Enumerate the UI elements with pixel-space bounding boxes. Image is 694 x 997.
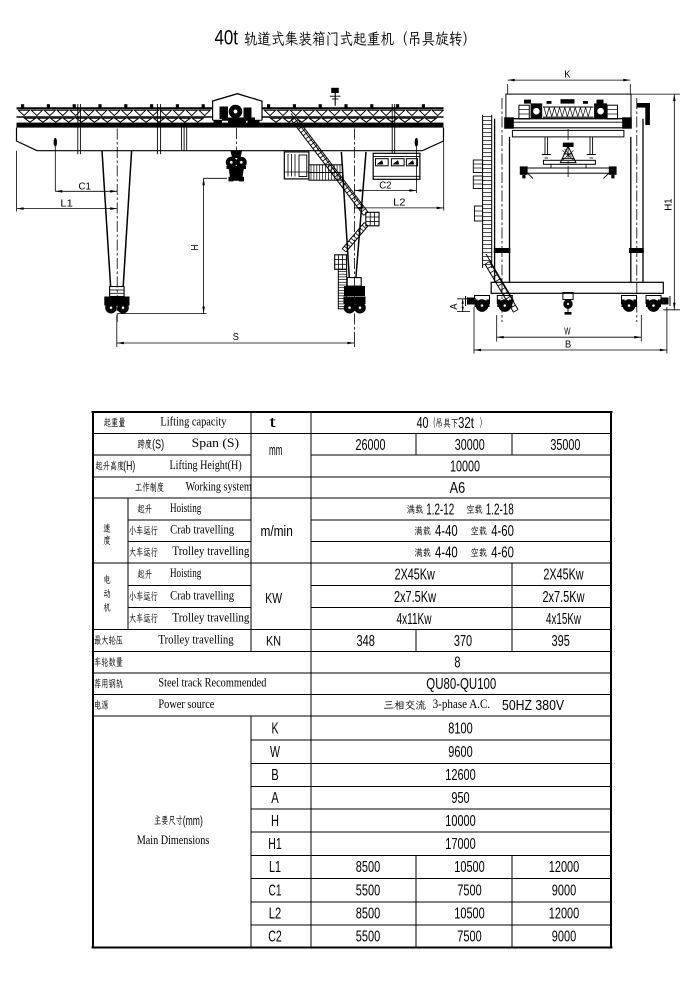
svg-text:8500: 8500 [356, 906, 381, 923]
svg-text:Lifting Height(H): Lifting Height(H) [170, 457, 242, 472]
svg-text:395: 395 [552, 633, 570, 650]
svg-text:9000: 9000 [552, 882, 576, 899]
svg-text:W: W [270, 744, 281, 761]
svg-text:4-60: 4-60 [491, 523, 514, 540]
svg-text:QU80-QU100: QU80-QU100 [426, 676, 496, 693]
svg-text:KN: KN [266, 632, 281, 648]
svg-text:W: W [564, 326, 570, 338]
svg-text:L2: L2 [269, 906, 282, 923]
svg-text:12600: 12600 [445, 767, 476, 784]
svg-text:8: 8 [454, 655, 460, 672]
svg-text:Hoisting: Hoisting [170, 500, 202, 515]
svg-text:Trolley travelling: Trolley travelling [172, 609, 249, 624]
svg-text:B: B [565, 339, 571, 351]
svg-text:Steel track Recommended: Steel track Recommended [158, 675, 266, 690]
svg-text:17000: 17000 [445, 836, 476, 853]
svg-text:H1: H1 [662, 198, 674, 211]
svg-text:50HZ 380V: 50HZ 380V [502, 698, 564, 714]
svg-text:40t: 40t [215, 26, 239, 49]
svg-text:A6: A6 [450, 480, 466, 497]
svg-text:30000: 30000 [455, 437, 485, 454]
svg-text:2X45Kw: 2X45Kw [543, 567, 584, 584]
svg-text:4x11Kw: 4x11Kw [397, 611, 432, 628]
svg-text:4-60: 4-60 [491, 545, 514, 562]
svg-text:370: 370 [454, 633, 472, 650]
svg-text:Crab travelling: Crab travelling [170, 522, 234, 537]
svg-text:12000: 12000 [549, 859, 580, 876]
svg-text:950: 950 [451, 790, 469, 807]
svg-text:26000: 26000 [356, 437, 386, 454]
svg-text:(H): (H) [123, 459, 135, 473]
svg-text:(S): (S) [152, 438, 164, 452]
svg-text:Power source: Power source [158, 696, 214, 711]
svg-text:C1: C1 [79, 180, 92, 192]
svg-text:4-40: 4-40 [435, 545, 458, 562]
svg-text:1.2-18: 1.2-18 [486, 501, 514, 518]
svg-text:Working system: Working system [186, 478, 252, 493]
svg-text:Hoisting: Hoisting [170, 565, 202, 580]
svg-text:Lifting capacity: Lifting capacity [160, 414, 226, 429]
svg-text:10000: 10000 [450, 459, 480, 476]
svg-text:H1: H1 [268, 836, 282, 853]
svg-text:L2: L2 [393, 196, 406, 208]
svg-text:mm: mm [269, 442, 282, 459]
svg-text:S: S [233, 331, 239, 343]
svg-text:8100: 8100 [448, 720, 472, 737]
svg-text:10500: 10500 [454, 906, 485, 923]
svg-text:t: t [269, 415, 276, 430]
svg-text:C1: C1 [269, 882, 282, 899]
svg-text:7500: 7500 [457, 882, 481, 899]
svg-text:B: B [271, 767, 279, 784]
svg-text:348: 348 [357, 633, 375, 650]
svg-text:KW: KW [265, 590, 282, 607]
svg-text:A: A [449, 303, 460, 310]
svg-text:L1: L1 [269, 859, 281, 876]
svg-text:2x7.5Kw: 2x7.5Kw [394, 589, 436, 606]
svg-text:m/min: m/min [261, 523, 293, 540]
svg-text:10000: 10000 [445, 813, 476, 830]
svg-text:H: H [271, 813, 279, 830]
svg-text:5500: 5500 [356, 882, 381, 899]
svg-text:5500: 5500 [356, 928, 381, 945]
svg-text:Span (S): Span (S) [192, 435, 239, 450]
svg-text:2x7.5Kw: 2x7.5Kw [542, 589, 584, 606]
svg-text:Crab travelling: Crab travelling [170, 587, 234, 602]
svg-text:K: K [272, 720, 279, 737]
svg-text:L1: L1 [60, 198, 73, 210]
svg-text:32t: 32t [458, 415, 474, 432]
svg-text:35000: 35000 [550, 437, 580, 454]
svg-text:C2: C2 [379, 180, 392, 192]
svg-text:Trolley travelling: Trolley travelling [172, 543, 249, 558]
svg-text:A: A [271, 790, 279, 807]
svg-text:Main Dimensions: Main Dimensions [137, 832, 210, 847]
svg-text:4x15Kw: 4x15Kw [546, 611, 581, 628]
svg-text:3-phase A.C.: 3-phase A.C. [433, 697, 491, 711]
svg-text:C2: C2 [268, 928, 282, 945]
svg-text:2X45Kw: 2X45Kw [395, 567, 436, 584]
svg-text:7500: 7500 [457, 928, 481, 945]
svg-text:Trolley travelling: Trolley travelling [158, 631, 234, 646]
svg-text:10500: 10500 [454, 859, 485, 876]
svg-text:1.2-12: 1.2-12 [426, 501, 454, 518]
svg-text:K: K [564, 69, 570, 81]
svg-text:9600: 9600 [448, 744, 472, 761]
svg-text:40: 40 [417, 415, 429, 432]
svg-text:H: H [189, 244, 201, 250]
svg-text:(mm): (mm) [183, 814, 203, 828]
svg-text:12000: 12000 [549, 906, 580, 923]
svg-text:4-40: 4-40 [435, 523, 458, 540]
svg-text:8500: 8500 [356, 859, 381, 876]
svg-text:9000: 9000 [552, 928, 576, 945]
